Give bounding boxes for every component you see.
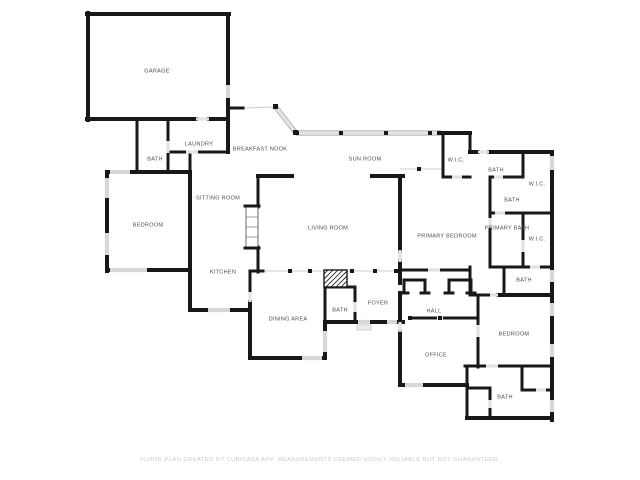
room-label-wic-2: W.I.C.	[529, 181, 546, 187]
room-label-bath-2: BATH	[488, 167, 504, 173]
footer-disclaimer: FLOOR PLAN CREATED BY CUBICASA APP. MEAS…	[0, 457, 640, 463]
room-label-bath-6: BATH	[497, 394, 513, 400]
post	[384, 131, 388, 135]
post	[339, 131, 343, 135]
post	[373, 269, 377, 273]
window-band-edge	[277, 105, 298, 132]
post	[295, 131, 299, 135]
room-label-bath-5: BATH	[332, 307, 348, 313]
room-label-foyer: FOYER	[368, 300, 389, 306]
wall-cap	[273, 104, 278, 109]
post	[408, 316, 412, 320]
room-label-bath-3: BATH	[504, 197, 520, 203]
post	[417, 167, 421, 171]
room-label-living-room: LIVING ROOM	[308, 225, 348, 231]
room-label-sitting-room: SITTING ROOM	[196, 195, 240, 201]
window-band-edge	[273, 107, 294, 134]
room-label-bedroom-2: BEDROOM	[499, 331, 530, 337]
room-label-office: OFFICE	[425, 352, 447, 358]
post	[438, 316, 442, 320]
sunroom-window-diagonal	[275, 106, 296, 133]
floor-plan-canvas: GARAGELAUNDRYBATHBREAKFAST NOOKSUN ROOMW…	[0, 0, 640, 480]
room-label-garage: GARAGE	[144, 68, 169, 74]
room-label-laundry: LAUNDRY	[185, 141, 213, 147]
post	[288, 269, 292, 273]
room-label-bedroom-1: BEDROOM	[133, 222, 164, 228]
room-label-bath-4: BATH	[516, 277, 532, 283]
room-label-kitchen: KITCHEN	[210, 269, 236, 275]
floor-plan-page: GARAGELAUNDRYBATHBREAKFAST NOOKSUN ROOMW…	[0, 0, 640, 480]
post	[437, 131, 441, 135]
post	[394, 269, 398, 273]
room-label-dining-area: DINING AREA	[269, 316, 308, 322]
room-label-wic-3: W.I.C.	[529, 236, 546, 242]
post	[428, 131, 432, 135]
room-label-bath-1: BATH	[147, 156, 163, 162]
room-label-breakfast-nook: BREAKFAST NOOK	[233, 146, 287, 152]
room-label-primary-bath: PRIMARY BATH	[485, 225, 529, 231]
room-label-primary-bedroom: PRIMARY BEDROOM	[417, 233, 477, 239]
opening-line	[243, 107, 275, 108]
room-label-wic-1: W.I.C.	[448, 157, 465, 163]
room-label-sun-room: SUN ROOM	[349, 156, 382, 162]
room-label-hall: HALL	[427, 308, 442, 314]
post	[350, 269, 354, 273]
post	[308, 269, 312, 273]
entry-step	[357, 325, 371, 330]
